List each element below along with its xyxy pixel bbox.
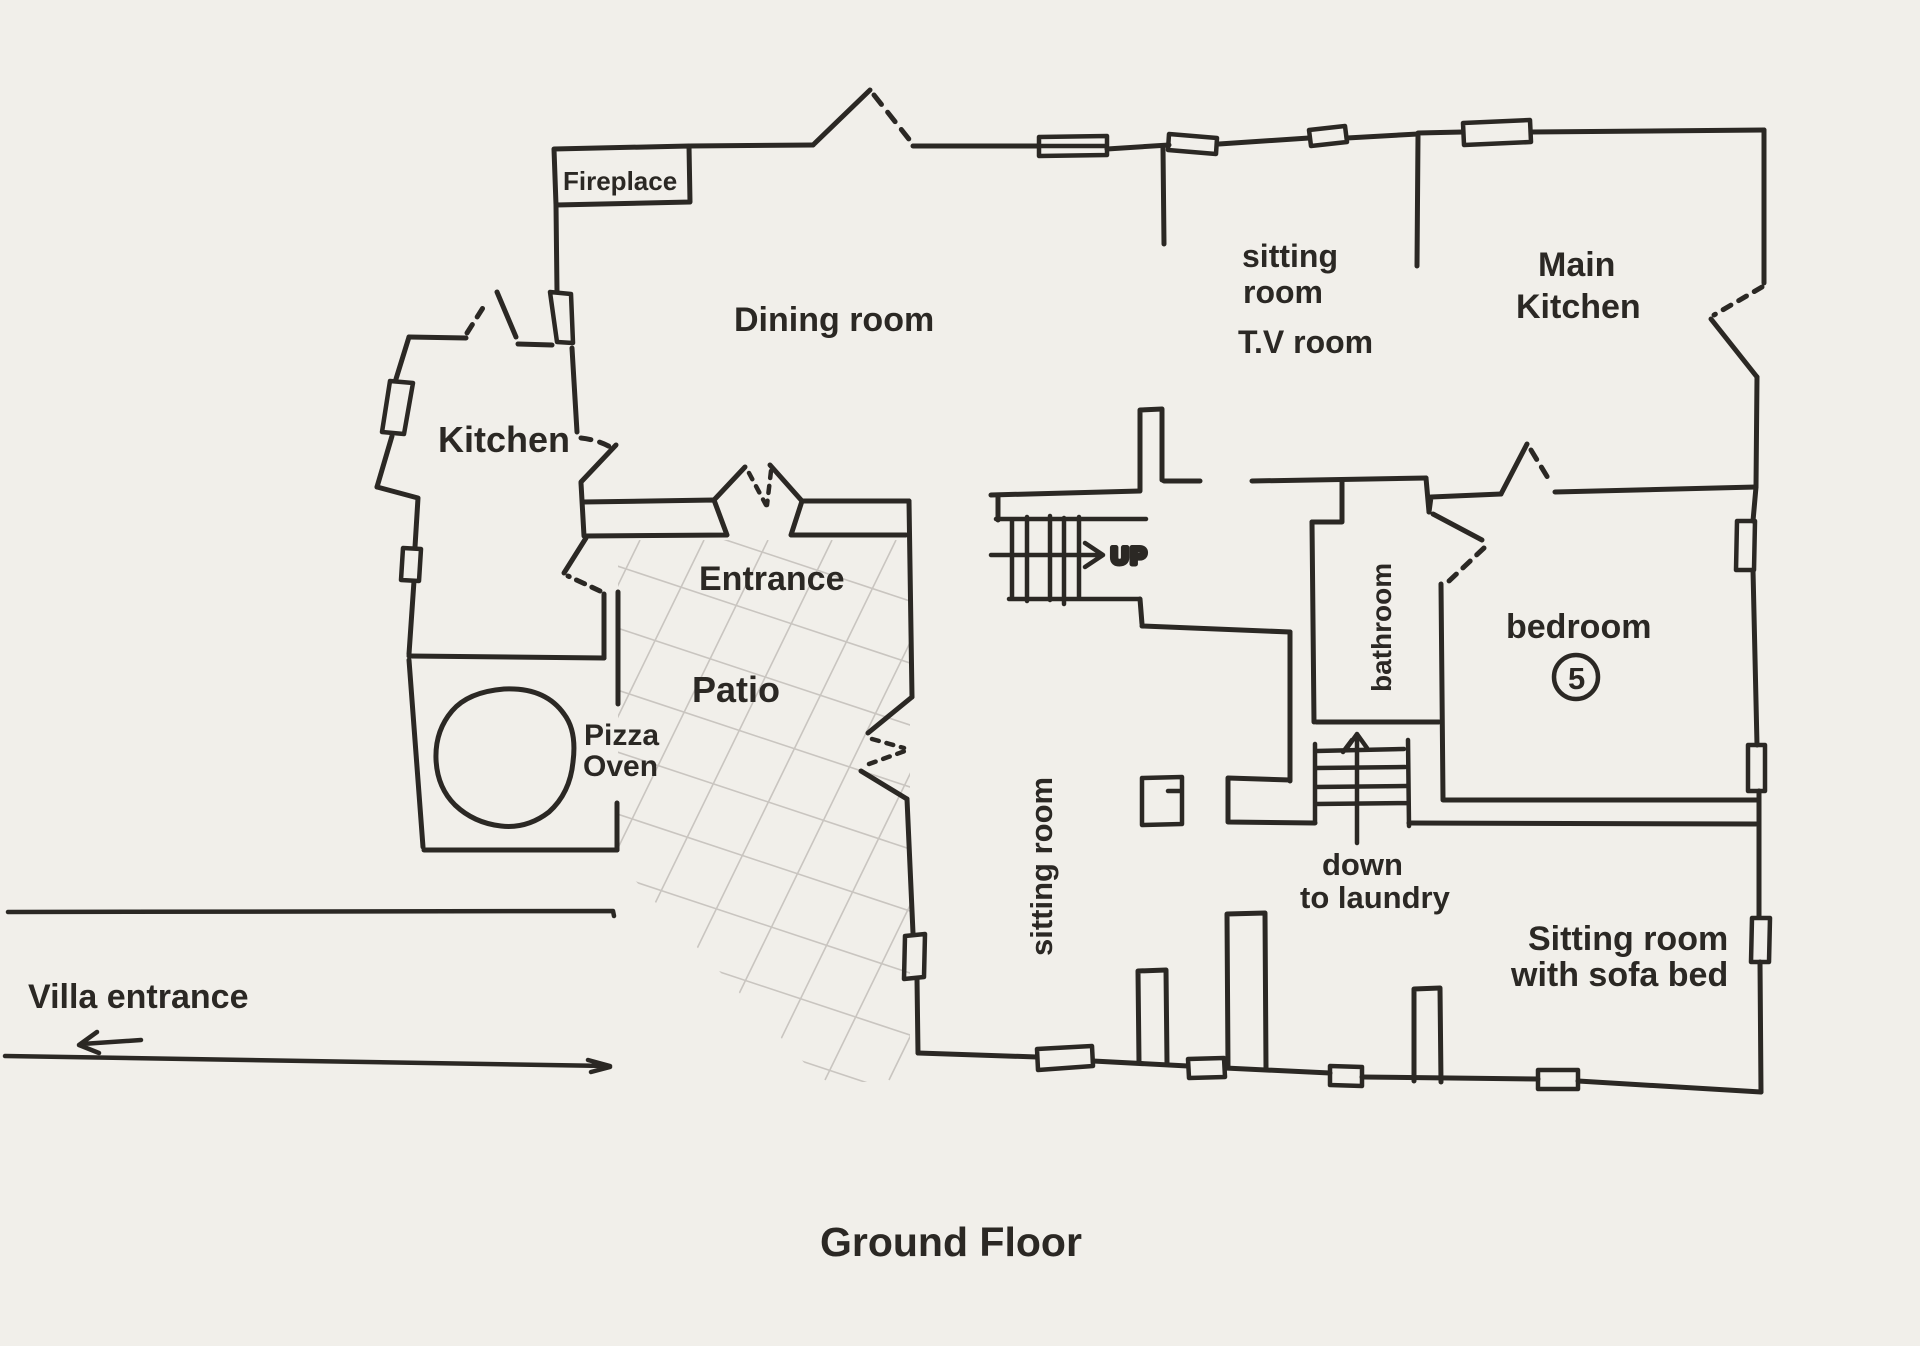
svg-text:Dining room: Dining room xyxy=(734,301,934,339)
svg-text:sitting: sitting xyxy=(1242,238,1338,274)
svg-text:to laundry: to laundry xyxy=(1300,880,1451,915)
svg-text:Oven: Oven xyxy=(583,750,658,783)
svg-text:Fireplace: Fireplace xyxy=(563,166,677,196)
svg-text:Patio: Patio xyxy=(692,669,780,710)
svg-text:Entrance: Entrance xyxy=(699,560,845,598)
svg-text:sitting room: sitting room xyxy=(1024,777,1059,956)
svg-text:Ground Floor: Ground Floor xyxy=(820,1219,1082,1265)
svg-text:room: room xyxy=(1243,274,1323,310)
svg-text:Kitchen: Kitchen xyxy=(438,419,570,460)
svg-text:bathroom: bathroom xyxy=(1366,563,1397,692)
svg-text:UP: UP xyxy=(1111,543,1148,570)
svg-text:Sitting room: Sitting room xyxy=(1528,920,1728,958)
svg-text:with sofa bed: with sofa bed xyxy=(1510,956,1728,994)
svg-text:Pizza: Pizza xyxy=(584,719,659,752)
svg-text:5: 5 xyxy=(1568,661,1585,696)
svg-text:bedroom: bedroom xyxy=(1506,608,1651,646)
svg-text:Kitchen: Kitchen xyxy=(1516,288,1641,326)
svg-text:T.V room: T.V room xyxy=(1238,324,1373,360)
svg-text:Villa entrance: Villa entrance xyxy=(28,978,249,1016)
svg-text:down: down xyxy=(1322,847,1403,882)
svg-text:Main: Main xyxy=(1538,246,1615,284)
